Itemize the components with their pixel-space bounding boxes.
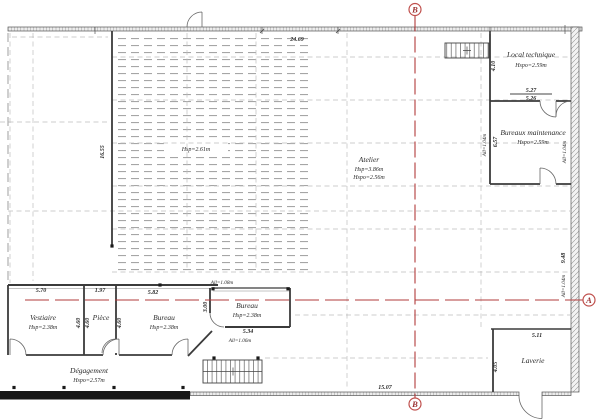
dim-local-technique-b: 5.26 <box>526 96 537 102</box>
room-label-bureau2-height: Hsp=2.38m <box>232 313 262 319</box>
room-label-atelier-height-a: Hsp=3.86m <box>354 167 384 173</box>
dim-left-height: 16.55 <box>100 145 106 159</box>
section-marker-a-right: A <box>583 294 595 306</box>
room-label-local-technique: Local technique <box>506 50 556 59</box>
dim-top-width: 24.69 <box>289 37 304 43</box>
section-letter-b-top: B <box>411 4 418 14</box>
dim-bureau2-height: 3.00 <box>203 302 209 314</box>
room-label-atelier: Atelier <box>358 155 379 164</box>
room-label-laverie: Laverie <box>521 356 546 365</box>
sill-label-top: All=1.08m <box>210 280 234 286</box>
dim-bureaux-maintenance-height: 6.57 <box>493 136 499 148</box>
section-letter-b-bottom: B <box>411 399 418 409</box>
floor-plan-canvas: B B A 24.69 16.55 15.07 9.48 5.11 4.05 5… <box>0 0 600 420</box>
dim-piece-width: 1.97 <box>95 288 107 294</box>
dim-vestiaire-width: 5.70 <box>36 288 47 294</box>
dim-right-height: 9.48 <box>561 253 567 264</box>
dim-piece-height-b: 4.60 <box>117 318 123 330</box>
room-label-vestiaire: Vestiaire <box>30 313 57 322</box>
section-letter-a: A <box>585 295 592 305</box>
room-label-mezzanine-height: Hsp=2.61m <box>181 147 211 153</box>
room-label-bureaux-maintenance: Bureaux maintenance <box>500 128 566 137</box>
floorplan-sheet: B B A 24.69 16.55 15.07 9.48 5.11 4.05 5… <box>0 0 600 420</box>
dim-vestiaire-height: 4.60 <box>76 318 82 330</box>
room-label-bureaux-maintenance-height: Hspo=2.59m <box>516 140 549 146</box>
room-label-piece: Pièce <box>92 313 110 322</box>
stairs-bottom <box>203 360 262 383</box>
stairs-top <box>445 43 489 58</box>
section-marker-b-bottom: B <box>409 398 421 410</box>
dim-laverie-width: 5.11 <box>532 333 542 339</box>
section-marker-b-top: B <box>409 4 421 16</box>
room-label-bureau2: Bureau <box>236 301 258 310</box>
sill-label-bm-left: All=1.04m <box>481 134 488 158</box>
room-label-local-technique-height: Hspo=2.59m <box>514 63 547 69</box>
room-label-bureau1-height: Hsp=2.38m <box>149 325 179 331</box>
sill-label-right-upper: All=1.04m <box>561 141 568 165</box>
dim-bureau2-width: 5.34 <box>243 329 254 335</box>
room-label-degagement: Dégagement <box>69 366 109 375</box>
room-label-bureau1: Bureau <box>153 313 175 322</box>
dim-laverie-height: 4.05 <box>493 362 499 374</box>
room-label-vestiaire-height: Hsp=2.38m <box>28 325 58 331</box>
dim-local-technique-a: 5.27 <box>526 88 538 94</box>
room-label-degagement-height: Hspo=2.57m <box>72 378 105 384</box>
dim-local-technique-height: 4.10 <box>491 61 497 73</box>
dim-bureau1-width: 5.82 <box>148 290 159 296</box>
room-label-atelier-height-b: Hspo=2.56m <box>352 175 385 181</box>
sill-label-right-lower: All=1.04m <box>560 275 567 299</box>
dim-bottom-width: 15.07 <box>378 385 393 391</box>
mezzanine-hatch <box>114 33 308 271</box>
dim-piece-height-a: 4.60 <box>85 318 91 330</box>
sill-label-bottom: All=1.06m <box>228 338 252 344</box>
